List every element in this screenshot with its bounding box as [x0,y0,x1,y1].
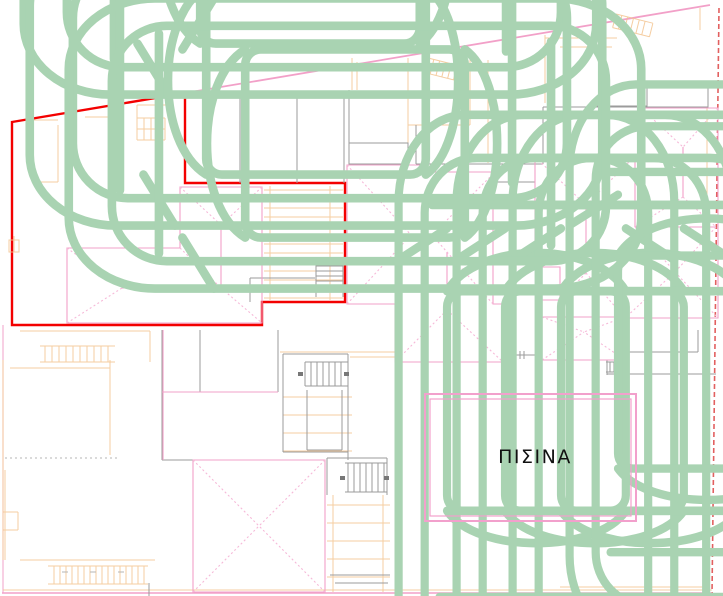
site-plan-canvas: ΠΙΣΙΝΑ [0,0,723,596]
staircases [62,257,390,583]
parked-cars [24,0,723,596]
pool-label: ΠΙΣΙΝΑ [498,446,572,468]
roof-pool-house [193,460,325,592]
left-lower-building-lines [162,330,278,460]
stair-icon-mid [283,354,349,460]
site-plan-drawing: ΠΙΣΙΝΑ [0,0,723,596]
stair-icon-lower [327,458,389,495]
